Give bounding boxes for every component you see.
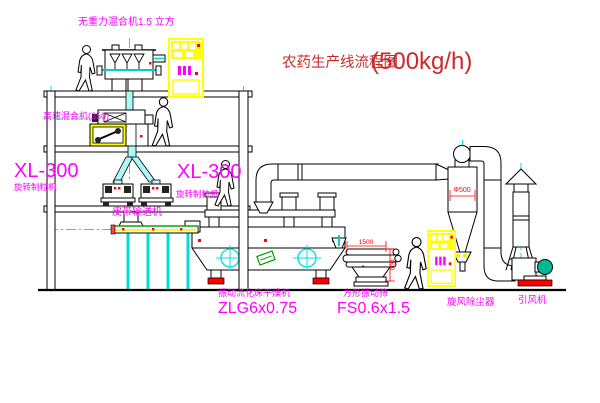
screen-width-dim: 600 bbox=[390, 259, 397, 270]
cyclone-diameter-dim: Φ500 bbox=[453, 187, 470, 194]
control-cabinet-lower bbox=[428, 231, 455, 286]
floor-slab-top bbox=[44, 91, 252, 97]
label-dryer-name: 振动流化床干燥机 bbox=[218, 287, 290, 298]
induced-draft-fan bbox=[512, 258, 553, 286]
label-fan: 引风机 bbox=[518, 294, 547, 306]
diagram-title: 农药生产线流程图 (500kg/h) bbox=[282, 48, 472, 75]
label-screen-name: 方形振动筛 bbox=[343, 287, 388, 298]
diagram-canvas: Φ500 bbox=[0, 0, 600, 403]
fan-motor bbox=[538, 260, 553, 275]
worker-mixer-floor bbox=[152, 98, 172, 146]
label-screen-model: FS0.6x1.5 bbox=[337, 300, 410, 317]
granulator-right bbox=[139, 180, 173, 206]
belt-conveyor bbox=[111, 225, 198, 289]
vibrating-screen: 1500 600 bbox=[332, 235, 401, 286]
label-gravityless-mixer: 无重力混合机1.5 立方 bbox=[78, 15, 175, 28]
label-granulator-left-name: 旋转制粒机 bbox=[14, 182, 57, 192]
label-granulator-right-name: 旋转制粒机 bbox=[176, 189, 219, 199]
title-capacity: (500kg/h) bbox=[371, 48, 472, 75]
worker-ground bbox=[405, 238, 426, 289]
label-granulator-left-model: XL-300 bbox=[14, 160, 79, 182]
control-cabinet-upper bbox=[169, 39, 203, 97]
label-belt-conveyor: 皮带输送机 bbox=[112, 205, 162, 218]
fan-base bbox=[518, 280, 552, 286]
label-high-speed-mixer: 高速混合机(350) bbox=[43, 110, 109, 121]
granulator-left bbox=[101, 180, 135, 206]
worker-top-floor bbox=[76, 46, 95, 92]
label-cyclone: 旋风除尘器 bbox=[447, 296, 495, 308]
process-flow-diagram: Φ500 bbox=[0, 0, 600, 403]
duct-taper bbox=[436, 164, 449, 180]
floor-slab-middle bbox=[44, 146, 252, 152]
gravityless-mixer bbox=[97, 45, 165, 91]
label-granulator-right-model: XL-300 bbox=[177, 161, 242, 183]
feed-pipe bbox=[126, 91, 133, 111]
label-dryer-model: ZLG6x0.75 bbox=[218, 300, 297, 317]
dryer-legs bbox=[208, 270, 329, 284]
screen-length-dim: 1500 bbox=[359, 239, 374, 246]
